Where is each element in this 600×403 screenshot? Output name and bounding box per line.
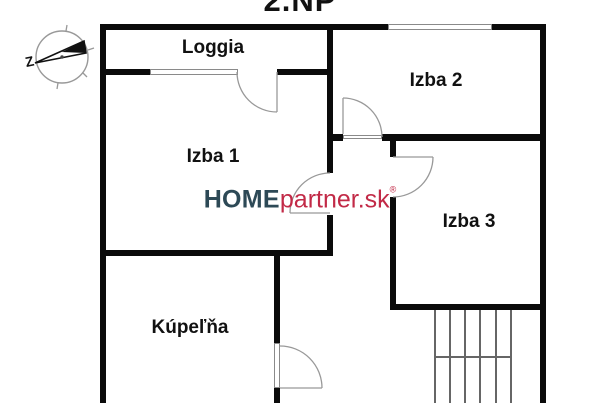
door-arc-kupelna [280,346,322,388]
door-arc-loggia [237,72,277,112]
floor-plan: 2.NP [0,0,600,403]
compass-icon: Z [24,25,94,89]
registered-trademark-icon: ® [390,185,397,195]
door-arc-izba3 [393,157,433,197]
room-label-kupelna: Kúpeľňa [152,317,229,339]
room-label-loggia: Loggia [182,37,244,59]
watermark-brand-bold: HOME [204,186,280,214]
watermark-logo: HOMEpartner.sk® [204,188,397,213]
room-label-izba3: Izba 3 [443,211,496,233]
door-arc-izba2 [343,98,382,137]
stairs [435,310,511,403]
watermark-brand-rest: partner.sk [280,186,390,214]
room-label-izba1: Izba 1 [187,146,240,168]
room-label-izba2: Izba 2 [410,70,463,92]
compass-west-label: Z [24,53,36,71]
